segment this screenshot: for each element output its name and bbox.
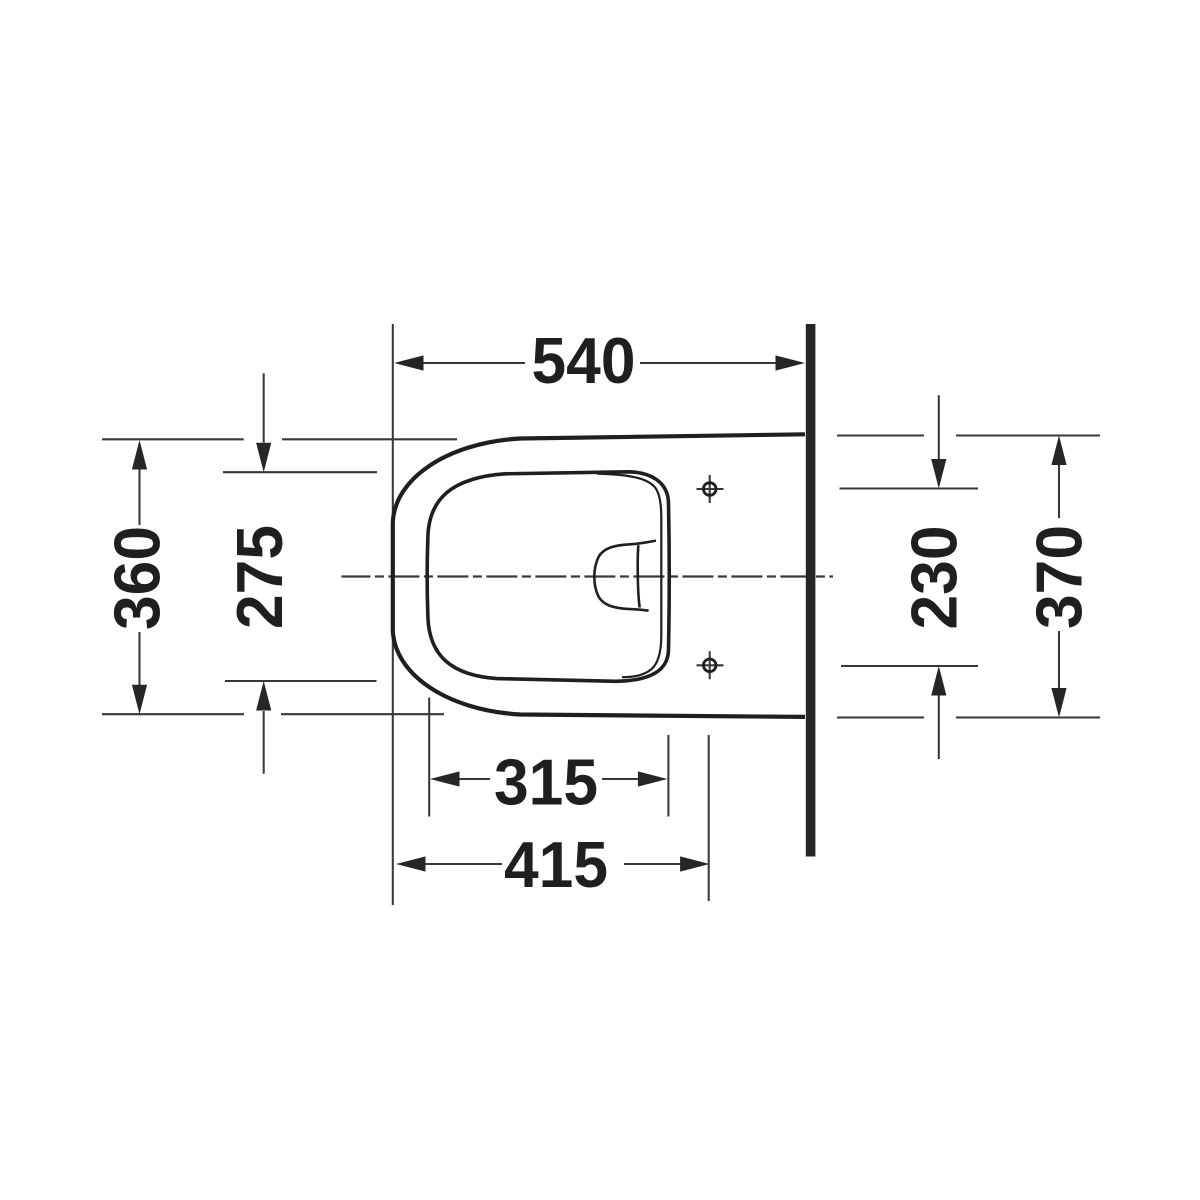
svg-text:230: 230 bbox=[899, 526, 971, 630]
svg-text:360: 360 bbox=[102, 526, 174, 630]
svg-text:275: 275 bbox=[224, 525, 296, 629]
svg-text:415: 415 bbox=[504, 829, 608, 901]
svg-text:315: 315 bbox=[494, 746, 598, 818]
svg-text:540: 540 bbox=[532, 325, 636, 397]
svg-text:370: 370 bbox=[1024, 525, 1096, 629]
